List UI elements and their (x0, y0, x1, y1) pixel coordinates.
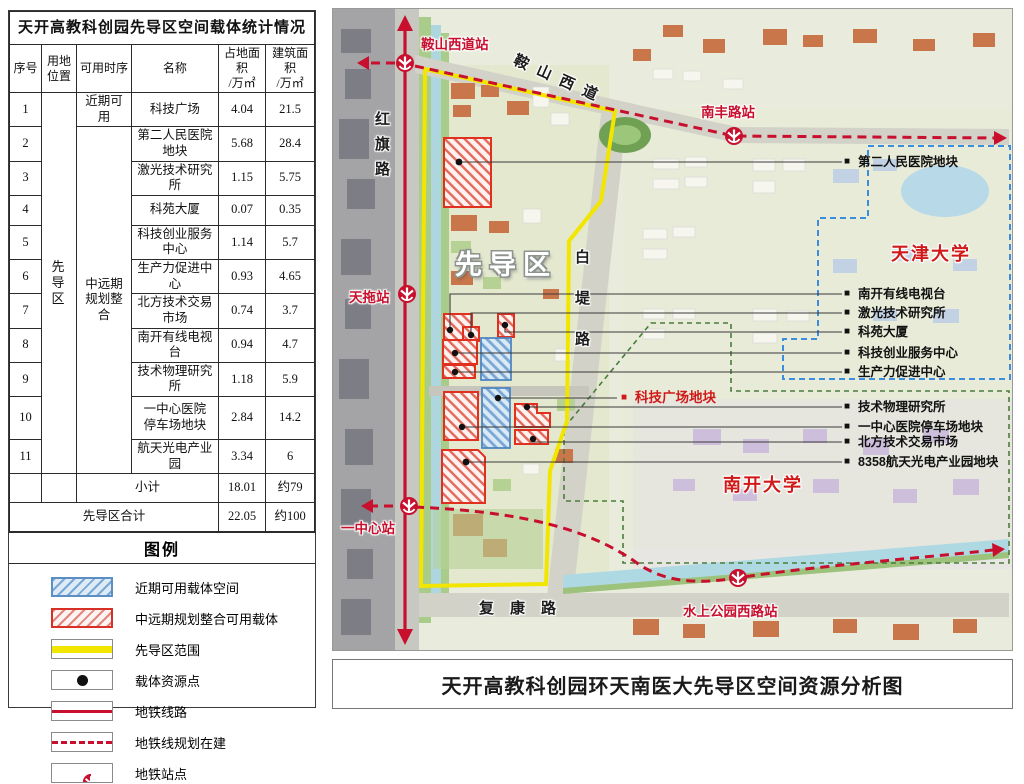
callout-label: 南开有线电视台 (858, 286, 946, 302)
nankai-university-label: 南开大学 (723, 471, 803, 497)
cell-no: 11 (10, 440, 42, 474)
legend-title: 图例 (9, 532, 315, 564)
cell-land: 3.34 (218, 440, 265, 474)
cell-name: 南开有线电视台 (131, 328, 218, 362)
legend-label: 先导区范围 (135, 640, 200, 659)
header-location: 用地 位置 (42, 45, 77, 93)
legend-label: 中远期规划整合可用载体 (135, 609, 278, 628)
cell-land: 0.93 (218, 260, 265, 294)
cell-building: 28.4 (266, 127, 315, 161)
callout-keji-guangchang: ■ 科技广场地块 (621, 390, 716, 406)
square-bullet-icon: ■ (844, 154, 850, 170)
header-land-area: 占地面积 /万㎡ (218, 45, 265, 93)
metro-station-icon (400, 497, 418, 515)
figure-title-bar: 天开高教科创园环天南医大先导区空间资源分析图 (332, 659, 1013, 709)
cell-land: 1.15 (218, 161, 265, 195)
red-square-bullet-icon: ■ (621, 390, 627, 406)
square-bullet-icon: ■ (844, 364, 850, 380)
cell-no: 8 (10, 328, 42, 362)
legend: 近期可用载体空间 中远期规划整合可用载体 先导区范围 载体资源点 地铁线路 地铁… (9, 564, 315, 784)
square-bullet-icon: ■ (844, 399, 850, 415)
metro-station-icon (73, 764, 91, 782)
cell-building: 4.7 (266, 328, 315, 362)
legend-item: 地铁线路 (51, 700, 315, 722)
cell-timing-mid: 中远期 规划整合 (77, 127, 132, 474)
callout-nankai-youxian: ■南开有线电视台 (844, 286, 946, 302)
legend-label: 地铁线规划在建 (135, 733, 226, 752)
cell-name: 技术物理研究所 (131, 362, 218, 396)
statistics-panel: 天开高教科创园先导区空间载体统计情况 序号 用地 位置 可用时序 名称 占地面积… (8, 10, 316, 708)
legend-item: 地铁站点 (51, 762, 315, 784)
callout-label: 科技广场地块 (635, 390, 716, 406)
cell-no: 9 (10, 362, 42, 396)
red-dashed-line-icon (52, 741, 112, 744)
cell-building: 14.2 (266, 397, 315, 440)
callout-keyuan-dasha: ■科苑大厦 (844, 324, 908, 340)
subtotal-row: 小计 18.01 约79 (10, 474, 315, 503)
mid-term-swatch (51, 608, 113, 628)
pilot-zone-label: 先导区 (455, 243, 557, 282)
cell-timing-near: 近期可用 (77, 93, 132, 127)
cell-building: 3.7 (266, 294, 315, 328)
callout-label: 科技创业服务中心 (858, 345, 958, 361)
statistics-table: 天开高教科创园先导区空间载体统计情况 序号 用地 位置 可用时序 名称 占地面积… (9, 11, 315, 532)
cell-name: 科技广场 (131, 93, 218, 127)
total-building: 约100 (266, 503, 315, 532)
cell-location: 先 导 区 (42, 93, 77, 474)
cell-land: 0.94 (218, 328, 265, 362)
map-panel: 鞍山西道站 南丰路站 天拖站 一中心站 水上公园西路站 红旗路 鞍山西道 白堤路… (332, 8, 1013, 651)
header-no: 序号 (10, 45, 42, 93)
callout-jiguang-jishu: ■激光技术研究所 (844, 305, 946, 321)
legend-label: 地铁线路 (135, 702, 187, 721)
callout-label: 激光技术研究所 (858, 305, 946, 321)
map-graphics (333, 9, 1012, 650)
square-bullet-icon: ■ (844, 454, 850, 470)
road-label-fukanglu: 复康路 (479, 597, 572, 618)
metro-station-icon (729, 569, 747, 587)
callout-label: 一中心医院停车场地块 (858, 419, 983, 435)
dot-icon (77, 675, 88, 686)
legend-label: 地铁站点 (135, 764, 187, 783)
callout-keji-chuangye: ■科技创业服务中心 (844, 345, 958, 361)
cell-no: 10 (10, 397, 42, 440)
table-row: 1 先 导 区 近期可用 科技广场 4.04 21.5 (10, 93, 315, 127)
square-bullet-icon: ■ (844, 345, 850, 361)
callout-label: 生产力促进中心 (858, 364, 946, 380)
near-term-swatch (51, 577, 113, 597)
header-timing: 可用时序 (77, 45, 132, 93)
cell-building: 6 (266, 440, 315, 474)
cell-land: 2.84 (218, 397, 265, 440)
cell-name: 激光技术研究所 (131, 161, 218, 195)
subtotal-label: 小计 (77, 474, 219, 503)
square-bullet-icon: ■ (844, 419, 850, 435)
near-term-parcels (481, 338, 511, 448)
callout-yizhongxin-yiyuan: ■一中心医院停车场地块 (844, 419, 983, 435)
total-label: 先导区合计 (10, 503, 219, 532)
map-base (333, 9, 1012, 650)
legend-item: 地铁线规划在建 (51, 731, 315, 753)
legend-item: 先导区范围 (51, 638, 315, 660)
header-name: 名称 (131, 45, 218, 93)
metro-line-swatch (51, 701, 113, 721)
callout-label: 北方技术交易市场 (858, 434, 958, 450)
cell-name: 北方技术交易市场 (131, 294, 218, 328)
cell-building: 5.7 (266, 225, 315, 259)
cell-building: 5.75 (266, 161, 315, 195)
cell-building: 4.65 (266, 260, 315, 294)
station-label-shuishanggongyuan: 水上公园西路站 (683, 600, 778, 620)
cell-land: 1.14 (218, 225, 265, 259)
station-label-tiantuo: 天拖站 (349, 286, 390, 306)
station-label-anshanxidao: 鞍山西道站 (421, 33, 489, 53)
legend-item: 载体资源点 (51, 669, 315, 691)
cell-land: 0.74 (218, 294, 265, 328)
metro-station-icon (725, 127, 743, 145)
metro-station-swatch (51, 763, 113, 783)
square-bullet-icon: ■ (844, 434, 850, 450)
tianjin-university-label: 天津大学 (891, 240, 971, 266)
callout-label: 第二人民医院地块 (858, 154, 958, 170)
cell-building: 5.9 (266, 362, 315, 396)
callout-label: 科苑大厦 (858, 324, 908, 340)
callout-label: 技术物理研究所 (858, 399, 946, 415)
legend-label: 近期可用载体空间 (135, 578, 239, 597)
cell-building: 0.35 (266, 195, 315, 225)
subtotal-building: 约79 (266, 474, 315, 503)
callout-8358-hangtian: ■8358航天光电产业园地块 (844, 454, 998, 470)
cell-land: 4.04 (218, 93, 265, 127)
cell-name: 科苑大厦 (131, 195, 218, 225)
station-label-nanfenglu: 南丰路站 (701, 101, 755, 121)
legend-label: 载体资源点 (135, 671, 200, 690)
cell-no: 1 (10, 93, 42, 127)
metro-station-icon (396, 54, 414, 72)
callout-label: 8358航天光电产业园地块 (858, 454, 998, 470)
figure-title: 天开高教科创园环天南医大先导区空间资源分析图 (442, 670, 904, 699)
subtotal-land: 18.01 (218, 474, 265, 503)
station-label-yizhongxin: 一中心站 (341, 517, 395, 537)
callout-shengchanli: ■生产力促进中心 (844, 364, 946, 380)
cell-building: 21.5 (266, 93, 315, 127)
legend-item: 近期可用载体空间 (51, 576, 315, 598)
boundary-swatch (51, 639, 113, 659)
metro-station-icon (398, 285, 416, 303)
cell-name: 第二人民医院地块 (131, 127, 218, 161)
cell-land: 5.68 (218, 127, 265, 161)
cell-name: 航天光电产业园 (131, 440, 218, 474)
cell-empty (42, 474, 77, 503)
table-title: 天开高教科创园先导区空间载体统计情况 (10, 12, 315, 45)
cell-no: 6 (10, 260, 42, 294)
cell-empty (10, 474, 42, 503)
cell-no: 5 (10, 225, 42, 259)
resource-point-swatch (51, 670, 113, 690)
red-line-icon (52, 710, 112, 713)
total-row: 先导区合计 22.05 约100 (10, 503, 315, 532)
callout-beifang-jishu: ■北方技术交易市场 (844, 434, 958, 450)
square-bullet-icon: ■ (844, 305, 850, 321)
road-label-hongqilu: 红旗路 (371, 111, 392, 186)
metro-planned-swatch (51, 732, 113, 752)
road-label-baidilu: 白堤路 (571, 249, 592, 372)
yellow-line-icon (52, 646, 112, 653)
cell-no: 3 (10, 161, 42, 195)
cell-land: 0.07 (218, 195, 265, 225)
cell-name: 一中心医院 停车场地块 (131, 397, 218, 440)
header-building-area: 建筑面积 /万㎡ (266, 45, 315, 93)
total-land: 22.05 (218, 503, 265, 532)
cell-land: 1.18 (218, 362, 265, 396)
callout-jishu-wuli: ■技术物理研究所 (844, 399, 946, 415)
cell-name: 科技创业服务中心 (131, 225, 218, 259)
cell-name: 生产力促进中心 (131, 260, 218, 294)
cell-no: 4 (10, 195, 42, 225)
cell-no: 7 (10, 294, 42, 328)
square-bullet-icon: ■ (844, 324, 850, 340)
callout-dier-renmin-yiyuan: ■第二人民医院地块 (844, 154, 958, 170)
square-bullet-icon: ■ (844, 286, 850, 302)
legend-item: 中远期规划整合可用载体 (51, 607, 315, 629)
cell-no: 2 (10, 127, 42, 161)
page: { "table": { "title": "天开高教科创园先导区空间载体统计情… (0, 0, 1024, 714)
